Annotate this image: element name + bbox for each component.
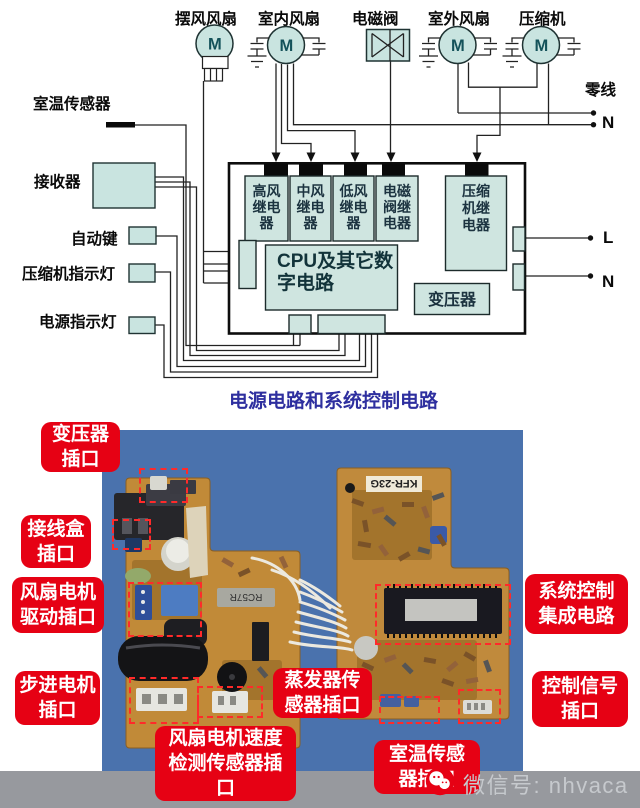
svg-text:继电: 继电 <box>340 199 368 215</box>
svg-text:N: N <box>602 272 614 291</box>
svg-text:CPU及其它数: CPU及其它数 <box>277 249 394 272</box>
svg-text:自动键: 自动键 <box>71 229 118 248</box>
svg-text:压缩: 压缩 <box>462 183 490 199</box>
svg-text:高风: 高风 <box>253 183 281 199</box>
svg-text:器: 器 <box>303 215 319 231</box>
svg-text:零线: 零线 <box>584 80 617 99</box>
svg-text:压缩机指示灯: 压缩机指示灯 <box>22 264 116 283</box>
svg-text:室内风扇: 室内风扇 <box>258 9 320 28</box>
svg-text:电源指示灯: 电源指示灯 <box>39 312 117 331</box>
svg-text:接收器: 接收器 <box>34 172 81 191</box>
svg-text:室温传感器: 室温传感器 <box>33 94 111 113</box>
svg-text:机继: 机继 <box>462 200 490 216</box>
svg-text:电磁阀: 电磁阀 <box>352 9 399 28</box>
svg-text:继电: 继电 <box>253 199 281 215</box>
svg-text:变压器: 变压器 <box>428 290 477 309</box>
svg-text:L: L <box>603 228 613 247</box>
svg-text:电磁: 电磁 <box>383 183 411 199</box>
svg-text:阀继: 阀继 <box>383 199 411 215</box>
svg-text:中风: 中风 <box>297 183 325 199</box>
svg-text:KFR-23G: KFR-23G <box>370 477 417 489</box>
svg-text:N: N <box>602 113 614 132</box>
svg-text:M: M <box>280 37 294 55</box>
svg-text:电器: 电器 <box>462 217 491 233</box>
svg-text:压缩机: 压缩机 <box>519 9 566 28</box>
svg-text:室外风扇: 室外风扇 <box>428 9 490 28</box>
svg-text:器: 器 <box>346 215 362 231</box>
svg-text:字电路: 字电路 <box>277 271 335 294</box>
svg-text:器: 器 <box>259 215 275 231</box>
svg-text:M: M <box>535 37 549 55</box>
svg-text:RC57R: RC57R <box>230 591 263 602</box>
svg-text:电器: 电器 <box>383 215 412 231</box>
svg-text:继电: 继电 <box>297 199 325 215</box>
svg-text:电源电路和系统控制电路: 电源电路和系统控制电路 <box>229 389 439 412</box>
svg-text:M: M <box>451 37 465 55</box>
svg-text:低风: 低风 <box>339 183 368 199</box>
svg-text:M: M <box>208 36 222 54</box>
svg-text:摆风风扇: 摆风风扇 <box>175 9 237 28</box>
